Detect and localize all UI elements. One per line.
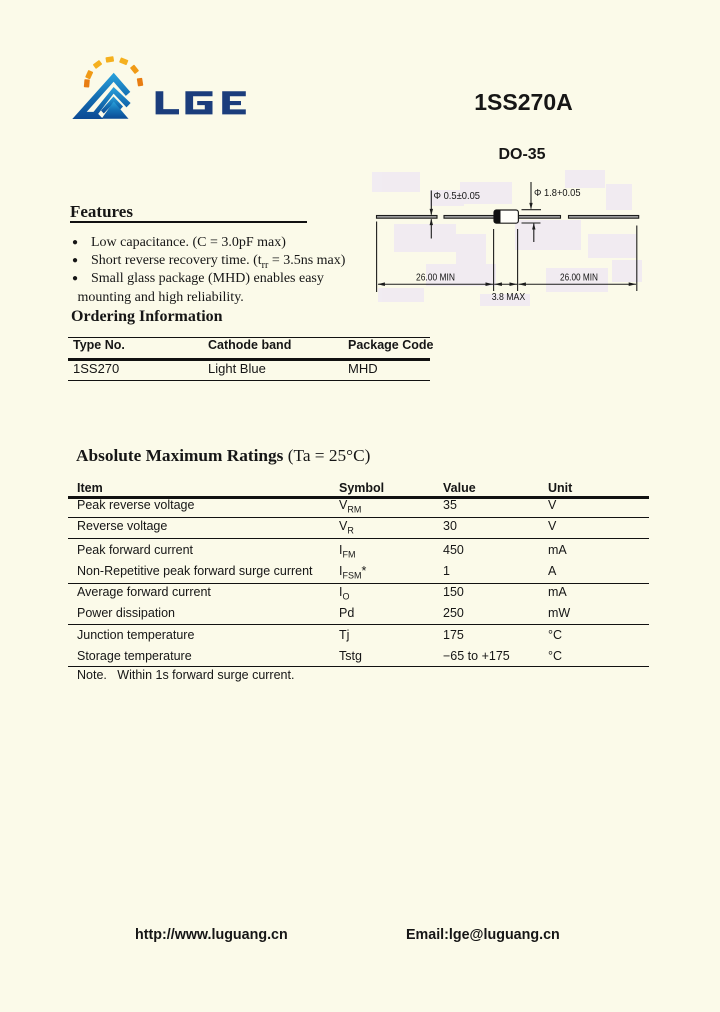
svg-text:3.8 MAX: 3.8 MAX [492,291,526,303]
svg-text:Φ 1.8+0.05: Φ 1.8+0.05 [534,187,581,199]
svg-text:26.00 MIN: 26.00 MIN [560,272,598,284]
svg-text:26.00 MIN: 26.00 MIN [416,272,455,284]
svg-text:Φ 0.5±0.05: Φ 0.5±0.05 [434,190,481,202]
